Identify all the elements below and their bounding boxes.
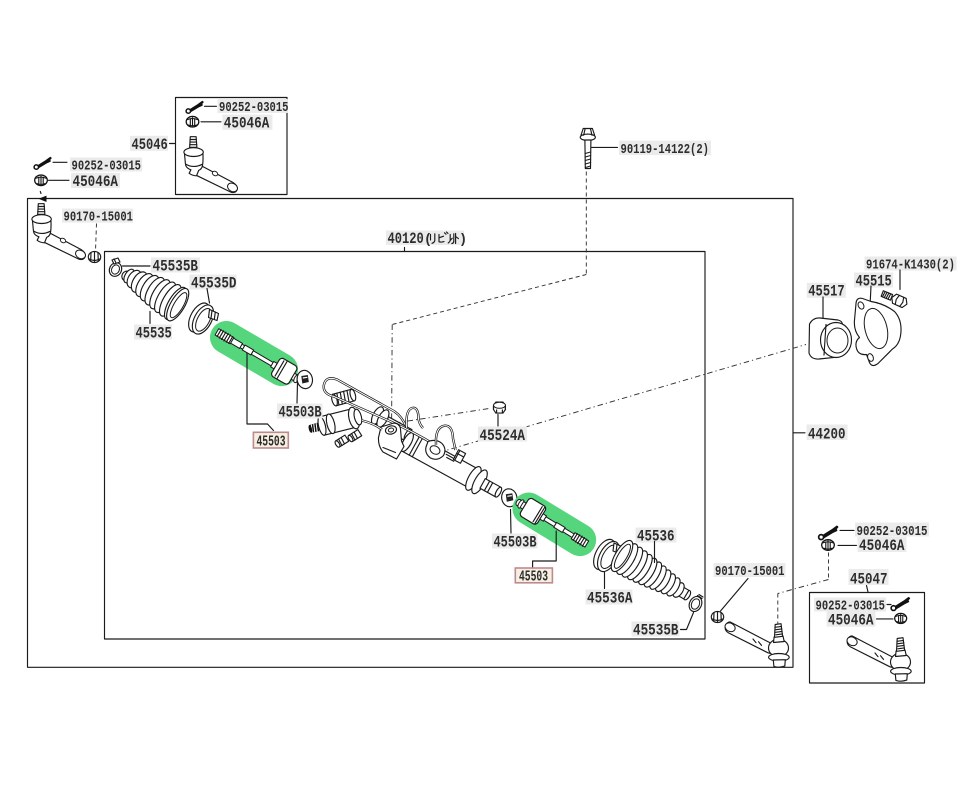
svg-text:45046A: 45046A [859, 537, 905, 555]
svg-text:45535B: 45535B [153, 258, 199, 276]
svg-text:45535: 45535 [136, 325, 172, 343]
svg-text:45046A: 45046A [828, 612, 874, 630]
svg-text:90170-15001: 90170-15001 [715, 565, 785, 580]
svg-text:45535B: 45535B [633, 621, 679, 639]
svg-text:45515: 45515 [856, 272, 892, 290]
svg-text:45536A: 45536A [587, 589, 633, 607]
svg-text:45046A: 45046A [73, 173, 119, 191]
svg-text:45503B: 45503B [279, 403, 322, 421]
svg-text:45046: 45046 [132, 136, 168, 154]
svg-text:45535D: 45535D [191, 274, 237, 292]
svg-text:45517: 45517 [808, 283, 844, 301]
svg-text:45503B: 45503B [494, 533, 537, 551]
svg-text:45046A: 45046A [224, 115, 270, 133]
svg-text:90119-14122(2): 90119-14122(2) [621, 143, 710, 158]
svg-text:): ) [459, 233, 467, 248]
svg-text:45503: 45503 [519, 570, 548, 586]
svg-text:45503: 45503 [257, 434, 286, 450]
svg-text:45524A: 45524A [480, 427, 526, 445]
svg-text:45536: 45536 [637, 527, 675, 545]
svg-text:40120: 40120 [388, 230, 424, 248]
svg-text:91674-K1430(2): 91674-K1430(2) [866, 259, 955, 274]
svg-text:44200: 44200 [808, 426, 846, 444]
svg-text:45047: 45047 [850, 570, 888, 588]
svg-text:90170-15001: 90170-15001 [64, 210, 134, 225]
